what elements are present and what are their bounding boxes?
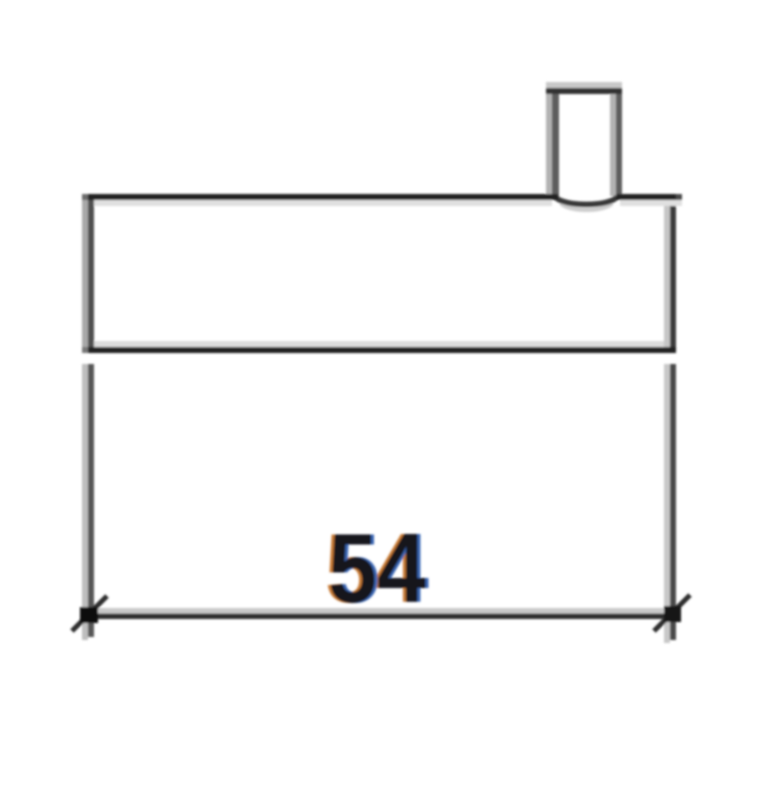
svg-text:54: 54 <box>328 513 426 623</box>
